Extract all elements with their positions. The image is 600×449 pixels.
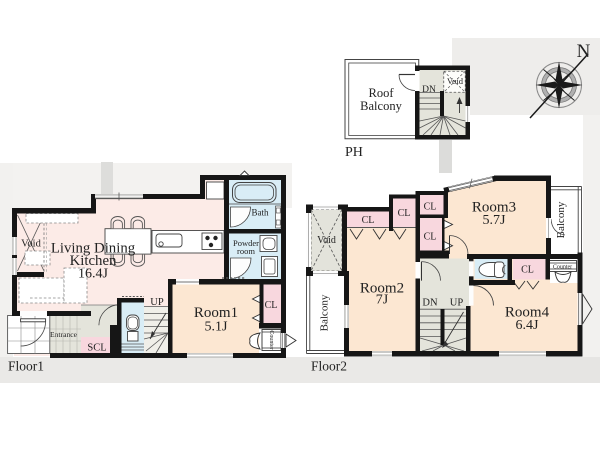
svg-text:Void: Void	[21, 239, 41, 250]
svg-text:PH: PH	[345, 145, 363, 160]
svg-text:N: N	[577, 41, 591, 62]
svg-text:6.4J: 6.4J	[516, 318, 540, 333]
svg-text:DN: DN	[422, 85, 436, 95]
svg-text:SCL: SCL	[87, 343, 106, 354]
svg-text:Bath: Bath	[252, 208, 269, 218]
svg-text:Void: Void	[447, 76, 464, 86]
svg-text:Balcony: Balcony	[360, 99, 402, 113]
svg-text:Entrance: Entrance	[50, 330, 78, 339]
svg-text:Counter: Counter	[553, 265, 572, 271]
svg-text:Floor2: Floor2	[311, 359, 347, 374]
svg-text:Balcony: Balcony	[319, 294, 331, 331]
svg-text:room: room	[237, 246, 255, 256]
svg-text:16.4J: 16.4J	[78, 267, 109, 282]
svg-text:Roof: Roof	[369, 86, 395, 100]
svg-text:UP: UP	[450, 298, 464, 309]
svg-text:UP: UP	[150, 297, 164, 308]
svg-text:Void: Void	[317, 235, 336, 246]
svg-text:CL: CL	[424, 232, 437, 243]
svg-text:CL: CL	[398, 208, 411, 219]
svg-text:5.7J: 5.7J	[483, 213, 507, 228]
svg-text:DN: DN	[422, 298, 438, 309]
svg-text:Balcony: Balcony	[555, 201, 567, 238]
svg-text:5.1J: 5.1J	[205, 320, 229, 335]
svg-text:CL: CL	[265, 300, 278, 311]
svg-text:CL: CL	[362, 215, 375, 226]
svg-text:Floor1: Floor1	[8, 359, 44, 374]
svg-text:CL: CL	[521, 265, 534, 276]
svg-text:Counter: Counter	[268, 330, 274, 349]
svg-text:7J: 7J	[376, 293, 389, 308]
svg-text:CL: CL	[424, 202, 437, 213]
